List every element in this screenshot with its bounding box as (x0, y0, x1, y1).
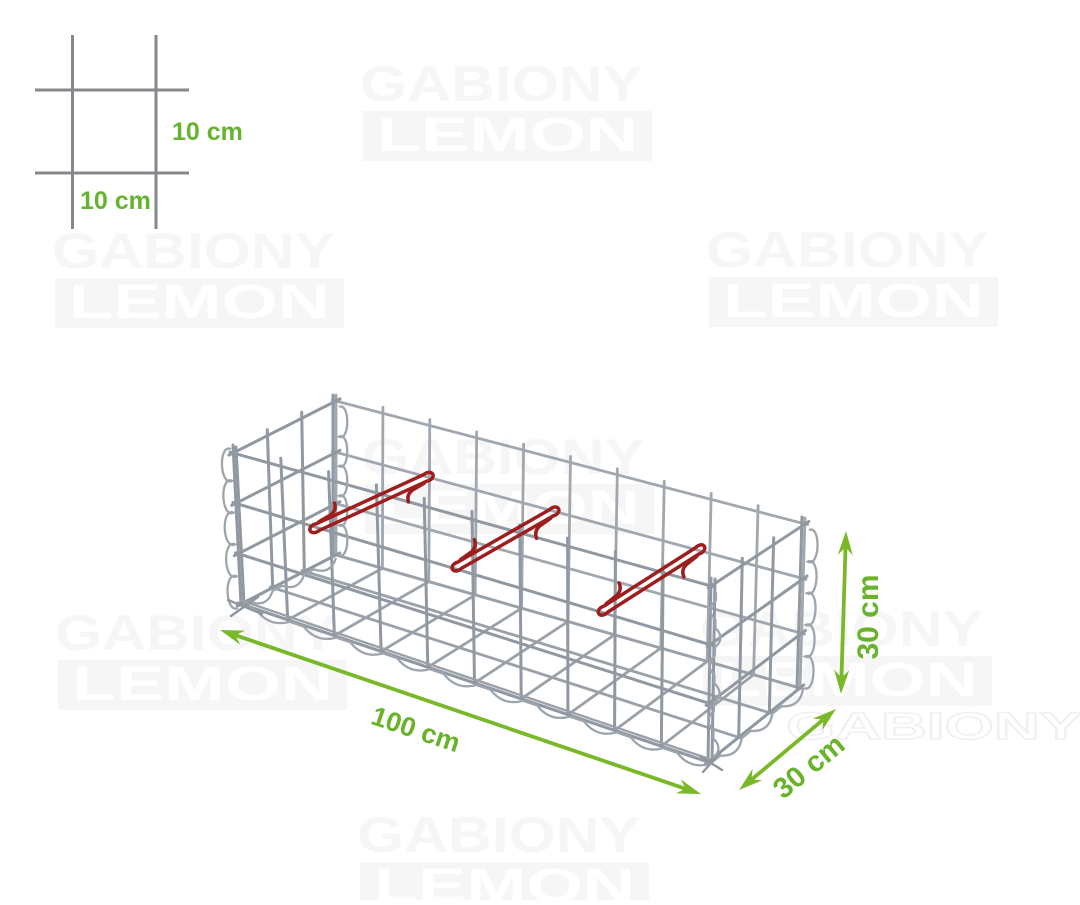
svg-text:GABIONY: GABIONY (52, 223, 335, 279)
svg-text:GABIONY: GABIONY (360, 56, 643, 112)
svg-text:LEMON: LEMON (374, 860, 635, 900)
svg-text:10 cm: 10 cm (80, 187, 151, 215)
svg-text:LEMON: LEMON (723, 275, 984, 328)
svg-text:GABIONY: GABIONY (357, 807, 640, 863)
svg-text:GABIONY: GABIONY (362, 429, 645, 485)
svg-text:10 cm: 10 cm (172, 118, 243, 146)
svg-text:LEMON: LEMON (72, 658, 333, 711)
svg-text:GABIONY: GABIONY (55, 605, 338, 661)
svg-text:30 cm: 30 cm (852, 574, 885, 659)
svg-text:GABIONY: GABIONY (706, 222, 989, 278)
svg-text:LEMON: LEMON (717, 654, 978, 707)
svg-text:LEMON: LEMON (377, 109, 638, 162)
svg-text:LEMON: LEMON (69, 276, 330, 329)
